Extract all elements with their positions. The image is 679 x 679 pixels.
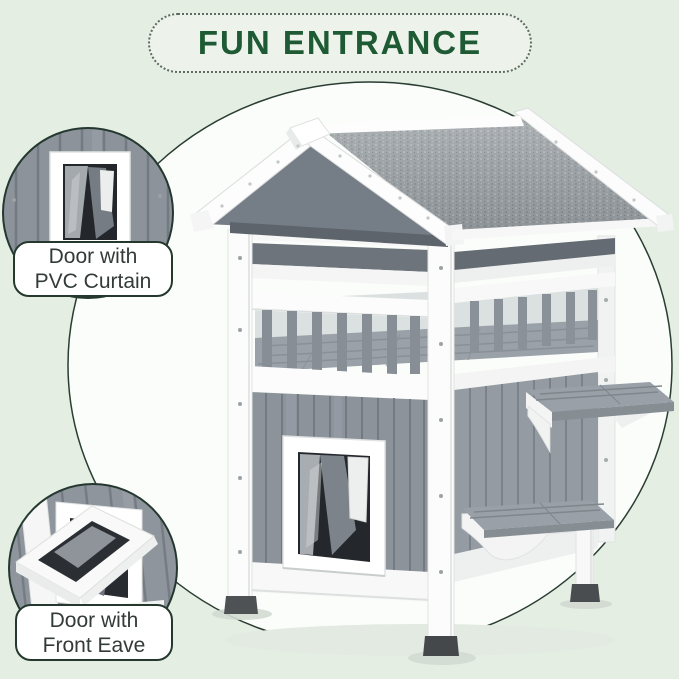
title-banner: FUN ENTRANCE — [148, 13, 532, 73]
main-door — [283, 436, 385, 576]
front-right-post — [428, 240, 454, 638]
callout-label-pvc-curtain: Door with PVC Curtain — [13, 241, 173, 297]
scene-svg — [0, 0, 679, 679]
front-left-post — [228, 230, 252, 598]
product-infographic: FUN ENTRANCE Door with PVC Curtain Door … — [0, 0, 679, 679]
callout-label-front-eave: Door with Front Eave — [15, 604, 173, 661]
callout-label-line: Door with — [50, 608, 139, 633]
callout-label-line: PVC Curtain — [35, 269, 152, 294]
cat-house-illustration — [190, 108, 674, 656]
callout-label-line: Door with — [49, 244, 138, 269]
step-foot — [570, 584, 600, 602]
title-text: FUN ENTRANCE — [198, 24, 482, 62]
callout-label-line: Front Eave — [43, 633, 146, 658]
